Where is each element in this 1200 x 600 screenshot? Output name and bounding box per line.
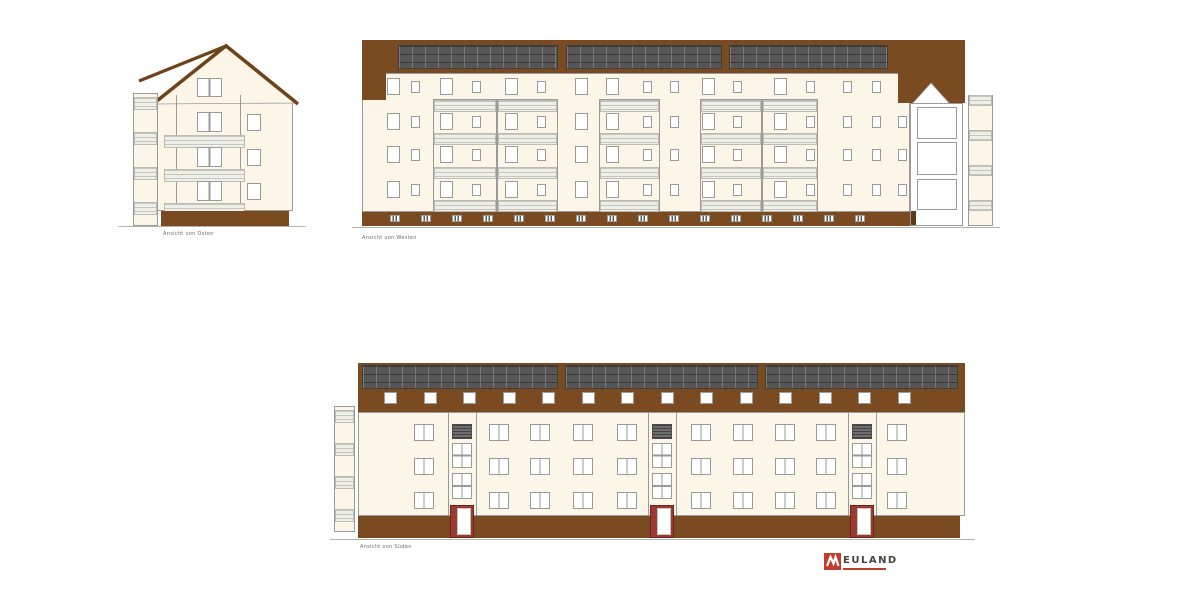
balcony-railing <box>498 167 557 179</box>
stairwell-edge <box>676 412 677 516</box>
window <box>774 78 787 95</box>
window <box>197 181 222 201</box>
balcony-railing <box>134 97 157 110</box>
window <box>702 113 715 130</box>
window <box>733 424 753 441</box>
elevations-layer <box>0 0 1200 600</box>
basement-window <box>669 215 679 222</box>
window <box>414 492 434 509</box>
small-window <box>843 116 852 128</box>
dormer-window <box>582 392 595 404</box>
window <box>775 458 795 475</box>
balcony-railing <box>701 133 761 145</box>
window <box>505 181 518 198</box>
tower-glazing <box>917 142 957 175</box>
dormer-window <box>898 392 911 404</box>
window <box>702 78 715 95</box>
door-leaf <box>457 508 471 535</box>
dormer-window <box>661 392 674 404</box>
window <box>505 146 518 163</box>
window <box>887 492 907 509</box>
bay-divider-line <box>176 95 177 211</box>
window <box>505 78 518 95</box>
stairwell-vent-window <box>852 424 872 439</box>
ground-line <box>330 539 975 540</box>
small-window <box>898 184 907 196</box>
balcony-railing <box>434 167 496 179</box>
small-window <box>411 149 420 161</box>
window <box>606 181 619 198</box>
small-window <box>643 81 652 93</box>
roof-solar-panel <box>566 45 722 69</box>
small-window <box>872 81 881 93</box>
small-window <box>733 116 742 128</box>
window <box>617 492 637 509</box>
balcony-railing <box>600 100 659 112</box>
basement-window <box>793 215 803 222</box>
stairwell-edge <box>476 412 477 516</box>
roof-solar-panel <box>362 365 558 389</box>
window <box>573 424 593 441</box>
window <box>575 181 588 198</box>
small-window <box>843 81 852 93</box>
window <box>247 114 261 131</box>
small-window <box>643 116 652 128</box>
entry-door <box>850 505 874 538</box>
window <box>197 112 222 132</box>
small-window <box>670 149 679 161</box>
dormer-window <box>779 392 792 404</box>
basement-window <box>576 215 586 222</box>
balcony-railing <box>701 167 761 179</box>
dormer-window <box>621 392 634 404</box>
stairwell-landing-window <box>852 443 872 468</box>
ground-line <box>352 227 1000 228</box>
logo-tagline-bar <box>843 568 886 570</box>
basement-window <box>607 215 617 222</box>
dormer-window <box>463 392 476 404</box>
balcony-railing <box>701 100 761 112</box>
balcony-railing <box>434 133 496 145</box>
stairwell-edge <box>848 412 849 516</box>
balcony-railing <box>763 200 817 212</box>
small-window <box>806 81 815 93</box>
stairwell-edge <box>876 412 877 516</box>
dormer-window <box>384 392 397 404</box>
roof-solar-panel <box>765 365 958 389</box>
balcony-railing <box>969 165 992 176</box>
balcony-railing <box>498 200 557 212</box>
small-window <box>411 81 420 93</box>
balcony-railing <box>969 130 992 141</box>
small-window <box>872 184 881 196</box>
wing-gable-wall <box>362 40 386 100</box>
stairwell-vent-window <box>652 424 672 439</box>
window <box>573 492 593 509</box>
balcony-railing <box>498 100 557 112</box>
basement-window <box>421 215 431 222</box>
window <box>575 113 588 130</box>
balcony-railing <box>600 167 659 179</box>
caption-west: Ansicht von Westen <box>362 235 417 241</box>
dormer-window <box>740 392 753 404</box>
window <box>617 424 637 441</box>
window <box>887 458 907 475</box>
window <box>387 146 400 163</box>
basement-window <box>700 215 710 222</box>
window <box>702 146 715 163</box>
window <box>505 113 518 130</box>
stairwell-edge <box>648 412 649 516</box>
small-window <box>898 149 907 161</box>
window <box>702 181 715 198</box>
window <box>606 113 619 130</box>
small-window <box>872 116 881 128</box>
small-window <box>472 81 481 93</box>
stairwell-vent-window <box>452 424 472 439</box>
small-window <box>670 116 679 128</box>
basement-window <box>545 215 555 222</box>
window <box>530 458 550 475</box>
small-window <box>898 116 907 128</box>
dormer-window <box>700 392 713 404</box>
small-window <box>733 149 742 161</box>
dormer-window <box>542 392 555 404</box>
window <box>440 181 453 198</box>
window <box>774 146 787 163</box>
window <box>247 149 261 166</box>
window <box>775 492 795 509</box>
basement-window <box>824 215 834 222</box>
plinth <box>161 211 289 226</box>
balcony-railing <box>335 509 354 522</box>
balcony-railing <box>969 95 992 106</box>
window <box>197 147 222 167</box>
window <box>440 78 453 95</box>
window <box>774 181 787 198</box>
small-window <box>670 184 679 196</box>
ground-line <box>118 226 306 227</box>
small-window <box>537 81 546 93</box>
window <box>816 424 836 441</box>
logo-n-icon <box>824 553 841 570</box>
window <box>530 492 550 509</box>
small-window <box>537 184 546 196</box>
roof-solar-panel <box>398 45 558 69</box>
balcony-railing <box>763 133 817 145</box>
window <box>387 181 400 198</box>
drawing-canvas: Ansicht von Osten Ansicht von Westen Ans… <box>0 0 1200 600</box>
window <box>387 113 400 130</box>
small-window <box>472 116 481 128</box>
window <box>774 113 787 130</box>
window <box>440 113 453 130</box>
window <box>440 146 453 163</box>
basement-window <box>452 215 462 222</box>
balcony-railing <box>335 410 354 423</box>
balcony-railing <box>134 132 157 145</box>
caption-south: Ansicht von Süden <box>360 544 412 550</box>
window <box>530 424 550 441</box>
balcony-railing <box>134 167 157 180</box>
logo-wordmark: EULAND <box>843 555 898 566</box>
dormer-window <box>424 392 437 404</box>
small-window <box>806 116 815 128</box>
door-leaf <box>857 508 871 535</box>
stairwell-edge <box>448 412 449 516</box>
window <box>414 458 434 475</box>
stairwell-landing-window <box>652 443 672 468</box>
entry-door <box>650 505 674 538</box>
small-window <box>472 184 481 196</box>
window <box>414 424 434 441</box>
balcony-railing <box>600 200 659 212</box>
small-window <box>643 184 652 196</box>
stairwell-landing-window <box>452 443 472 468</box>
tower-glazing <box>917 179 957 210</box>
small-window <box>843 184 852 196</box>
small-window <box>537 149 546 161</box>
balcony-railing <box>763 167 817 179</box>
window <box>606 78 619 95</box>
window <box>617 458 637 475</box>
small-window <box>733 81 742 93</box>
stairwell-landing-window <box>852 473 872 499</box>
window <box>489 492 509 509</box>
window <box>573 458 593 475</box>
small-window <box>843 149 852 161</box>
basement-window <box>638 215 648 222</box>
balcony-railing <box>134 202 157 215</box>
balcony-railing <box>434 200 496 212</box>
window <box>733 458 753 475</box>
dormer-window <box>819 392 832 404</box>
small-window <box>411 184 420 196</box>
window <box>387 78 400 95</box>
brand-logo: EULAND <box>824 552 894 576</box>
balcony-railing <box>434 100 496 112</box>
basement-window <box>731 215 741 222</box>
entry-door <box>450 505 474 538</box>
balcony-railing <box>763 100 817 112</box>
basement-window <box>483 215 493 222</box>
window <box>816 458 836 475</box>
small-window <box>872 149 881 161</box>
window <box>575 146 588 163</box>
balcony-railing <box>335 476 354 489</box>
balcony-railing <box>701 200 761 212</box>
tower-door-mark <box>911 211 916 225</box>
small-window <box>411 116 420 128</box>
caption-east: Ansicht von Osten <box>163 231 214 237</box>
small-window <box>670 81 679 93</box>
basement-window <box>514 215 524 222</box>
window <box>816 492 836 509</box>
stairwell-landing-window <box>452 473 472 499</box>
window <box>575 78 588 95</box>
balcony-railing <box>335 443 354 456</box>
window <box>775 424 795 441</box>
window <box>247 183 261 200</box>
tower-gable-roof <box>898 40 965 103</box>
basement-window <box>855 215 865 222</box>
window <box>489 424 509 441</box>
window <box>691 458 711 475</box>
stairwell-landing-window <box>652 473 672 499</box>
window <box>489 458 509 475</box>
dormer-window <box>858 392 871 404</box>
roof-solar-panel <box>565 365 758 389</box>
roof-solar-panel <box>729 45 888 69</box>
balcony-railing <box>600 133 659 145</box>
basement-window <box>390 215 400 222</box>
balcony-railing <box>498 133 557 145</box>
door-leaf <box>657 508 671 535</box>
window <box>691 424 711 441</box>
facade-wall <box>154 100 293 211</box>
window <box>606 146 619 163</box>
basement-window <box>762 215 772 222</box>
dormer-window <box>503 392 516 404</box>
small-window <box>643 149 652 161</box>
window <box>733 492 753 509</box>
tower-glazing <box>917 107 957 139</box>
window <box>691 492 711 509</box>
window <box>887 424 907 441</box>
small-window <box>472 149 481 161</box>
small-window <box>537 116 546 128</box>
small-window <box>806 149 815 161</box>
small-window <box>733 184 742 196</box>
bay-divider-line <box>240 95 241 211</box>
small-window <box>806 184 815 196</box>
attic-window <box>197 78 222 97</box>
balcony-railing <box>969 200 992 211</box>
